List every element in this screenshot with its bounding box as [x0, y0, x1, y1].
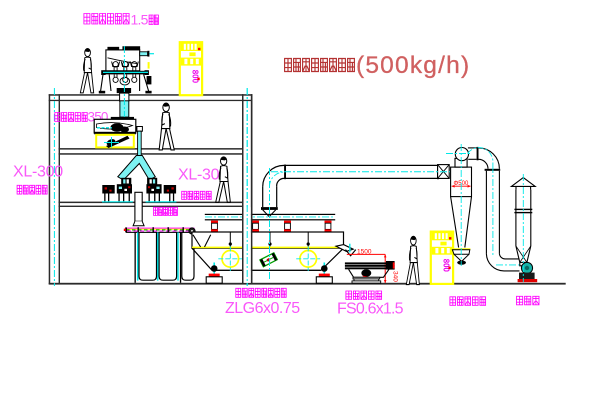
svg-text:(500kg/h): (500kg/h)	[356, 52, 470, 79]
svg-text:340: 340	[392, 271, 399, 282]
svg-text:FS0.6x1.5: FS0.6x1.5	[337, 300, 404, 317]
svg-text:ZLG6x0.75: ZLG6x0.75	[225, 300, 300, 317]
svg-text:1.5: 1.5	[131, 11, 149, 27]
svg-text:XL-300: XL-300	[13, 163, 63, 180]
svg-text:1500: 1500	[357, 248, 372, 255]
